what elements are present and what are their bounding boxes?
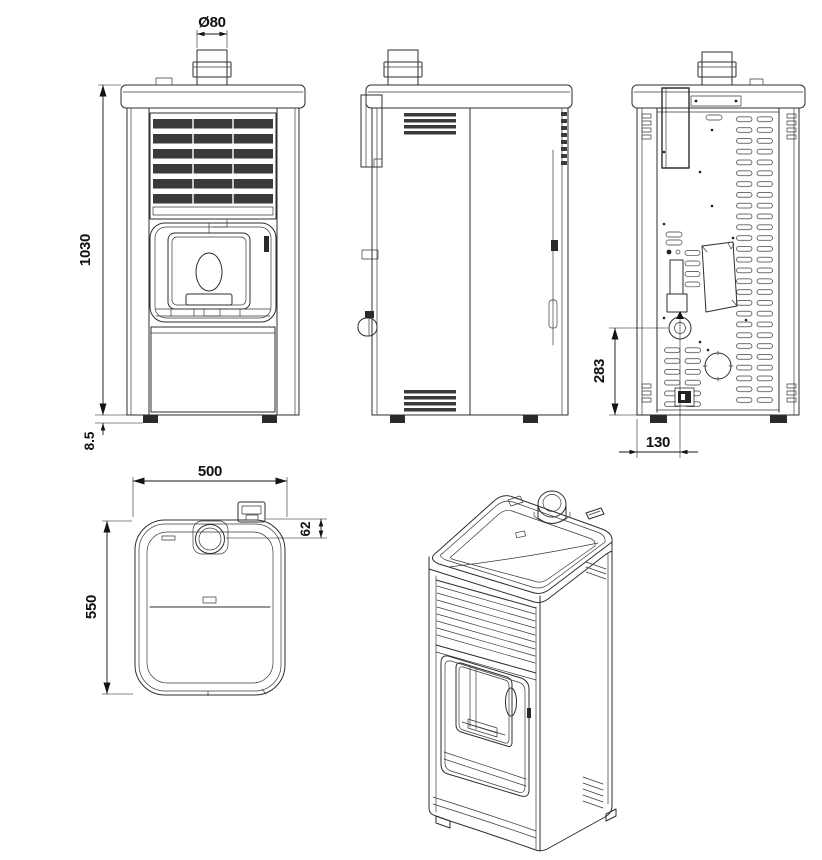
back-flue-pipe <box>698 52 736 85</box>
dim-foot-height: 8.5 <box>82 431 97 450</box>
front-grille <box>150 113 276 219</box>
iso-door-latch <box>527 708 531 718</box>
iso-control-box <box>586 508 604 519</box>
back-access-plate <box>702 242 737 312</box>
dim-air-inlet-offset: 130 <box>646 434 670 451</box>
back-view: 283 130 <box>591 52 805 458</box>
top-control-box <box>238 502 265 522</box>
iso-door-handle <box>506 688 517 716</box>
front-pedestal <box>127 327 299 423</box>
front-foot-left <box>143 415 158 423</box>
front-door <box>150 219 276 322</box>
back-top-cap <box>632 79 805 108</box>
dim-depth: 550 <box>83 595 100 619</box>
dim-flue-offset: 62 <box>298 521 313 536</box>
iso-front-grille <box>436 580 536 680</box>
dim-overall-height: 1030 <box>77 234 94 266</box>
iso-door <box>441 656 531 797</box>
front-top-cap <box>121 78 305 108</box>
side-air-inlet-stub <box>358 311 377 336</box>
back-air-inlet <box>669 311 691 342</box>
technical-drawing-sheet: Ø80 1030 8.5 <box>0 0 822 860</box>
iso-flue-collar <box>534 491 570 524</box>
back-feet <box>650 415 787 423</box>
side-top-cap <box>366 85 572 108</box>
side-body <box>372 108 568 415</box>
back-power-switch <box>675 388 694 406</box>
side-view <box>358 50 572 423</box>
top-outline <box>135 520 285 696</box>
iso-foot-front <box>436 816 450 828</box>
side-door-latch <box>551 240 558 251</box>
back-terminal-block <box>667 250 687 312</box>
dim-air-inlet-height: 283 <box>591 359 608 383</box>
iso-top-cap <box>429 496 612 608</box>
front-foot-right <box>262 415 277 423</box>
side-flue-pipe <box>384 50 422 85</box>
dim-width: 500 <box>198 463 222 480</box>
top-flue-collar <box>193 521 228 554</box>
dim-flue-diameter: Ø80 <box>198 14 225 31</box>
side-vents-bottom <box>404 390 456 412</box>
door-handle-recess <box>186 294 232 305</box>
door-window-oval <box>196 253 222 291</box>
perspective-view <box>429 491 616 851</box>
front-flue-pipe <box>193 50 231 85</box>
side-vents-top <box>404 113 456 135</box>
back-fan-housing <box>703 351 733 381</box>
side-front-ribs <box>549 112 567 328</box>
top-dimensions: 500 550 62 <box>83 463 327 694</box>
front-dimensions: Ø80 1030 8.5 <box>77 14 227 450</box>
iso-door-window <box>456 663 512 747</box>
top-view: 500 550 62 <box>83 463 327 696</box>
side-feet <box>390 415 538 423</box>
iso-side-vents <box>583 562 606 808</box>
back-electrical-box <box>662 88 741 168</box>
door-latch <box>264 236 269 252</box>
front-view: Ø80 1030 8.5 <box>77 14 305 450</box>
